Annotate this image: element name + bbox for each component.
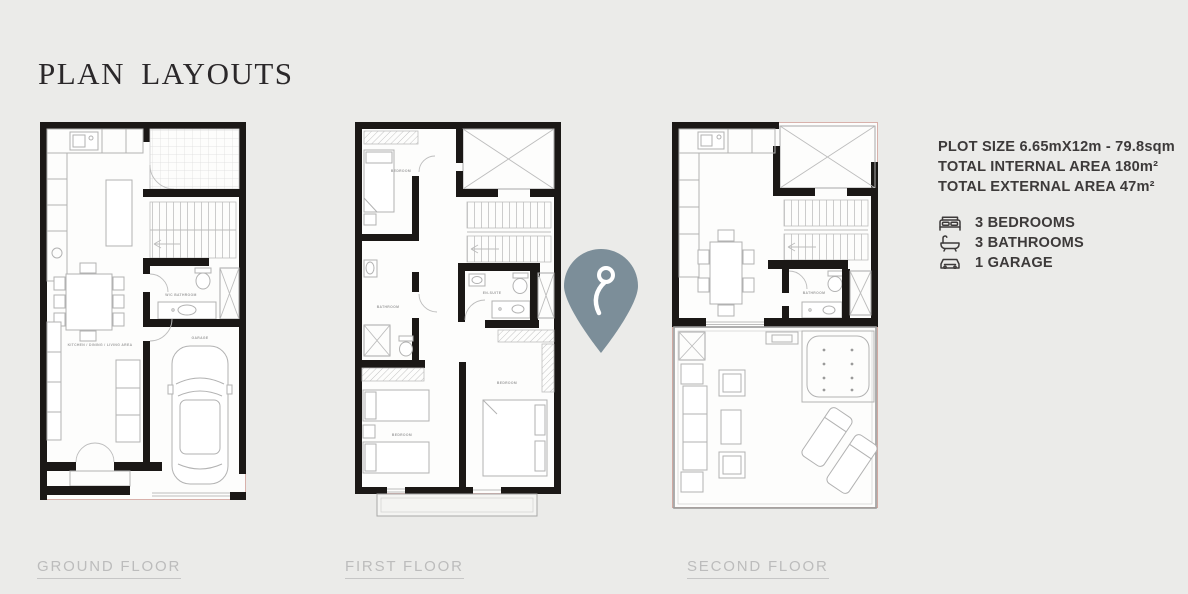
room-label-bathroom: BATHROOM — [803, 291, 826, 295]
room-label-bedroom2: BEDROOM — [392, 433, 412, 437]
second-floor-label[interactable]: SECOND FLOOR — [687, 558, 829, 579]
property-details: PLOT SIZE 6.65mX12m - 79.8sqm TOTAL INTE… — [938, 137, 1175, 273]
first-floor-plan: BEDROOM — [355, 122, 561, 520]
page-title: PLAN LAYOUTS — [38, 56, 294, 92]
double-bed — [483, 400, 547, 476]
room-label-garage: GARAGE — [192, 336, 209, 340]
garage-row: 1 GARAGE — [938, 253, 1175, 273]
bathrooms-label: 3 BATHROOMS — [975, 235, 1084, 251]
wardrobe — [362, 368, 424, 381]
car-top-view — [168, 346, 232, 484]
staircase — [458, 202, 551, 277]
room-label-ensuite: EN-SUITE — [483, 291, 502, 295]
ground-floor-plan: W/C BATHROOM — [40, 122, 246, 500]
map-pin-icon — [561, 246, 641, 356]
feature-list: 3 BEDROOMS 3 BATHROOMS — [938, 213, 1175, 273]
garage-label: 1 GARAGE — [975, 255, 1053, 271]
external-area-text: TOTAL EXTERNAL AREA 47m² — [938, 177, 1175, 197]
bathtub-icon — [938, 234, 962, 252]
ground-floor-plan-drawing: W/C BATHROOM — [40, 122, 246, 500]
single-bed — [363, 442, 429, 473]
first-floor-label[interactable]: FIRST FLOOR — [345, 558, 464, 579]
second-floor-plan: BATHROOM — [672, 122, 878, 512]
bathrooms-row: 3 BATHROOMS — [938, 233, 1175, 253]
plan-layouts-page: PLAN LAYOUTS — [0, 0, 1188, 594]
map-pin-marker[interactable] — [561, 246, 641, 361]
tiled-entry — [143, 129, 246, 197]
ground-floor-label[interactable]: GROUND FLOOR — [37, 558, 181, 579]
room-label-bedroom3: BEDROOM — [497, 381, 517, 385]
bedrooms-row: 3 BEDROOMS — [938, 213, 1175, 233]
single-bed — [363, 390, 429, 421]
wardrobe — [498, 330, 554, 342]
staircase — [143, 202, 236, 266]
internal-area-text: TOTAL INTERNAL AREA 180m² — [938, 157, 1175, 177]
balcony — [377, 494, 537, 516]
first-floor-plan-drawing: BEDROOM — [355, 122, 561, 520]
room-label-bathroom: BATHROOM — [377, 305, 400, 309]
second-floor-plan-drawing: BATHROOM — [672, 122, 878, 512]
wardrobe — [542, 344, 554, 392]
bed-icon — [938, 214, 962, 232]
car-icon — [938, 254, 962, 272]
kitchen-island — [106, 180, 132, 246]
bedrooms-label: 3 BEDROOMS — [975, 215, 1075, 231]
plot-size-text: PLOT SIZE 6.65mX12m - 79.8sqm — [938, 137, 1175, 157]
room-label-wc: W/C BATHROOM — [165, 293, 196, 297]
wardrobe — [364, 131, 418, 144]
room-label-main: KITCHEN / DINING / LIVING AREA — [68, 343, 133, 347]
room-label-bedroom1: BEDROOM — [391, 169, 411, 173]
